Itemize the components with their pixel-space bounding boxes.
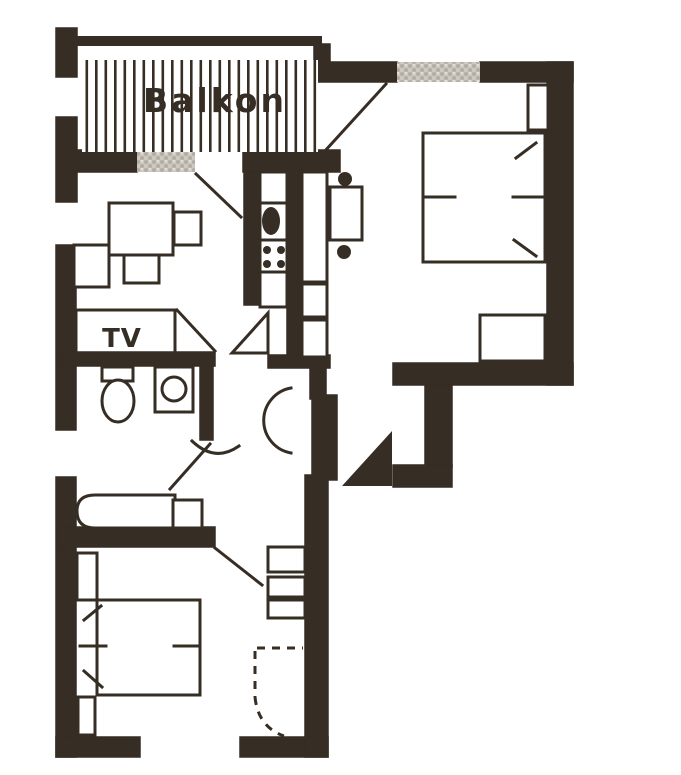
cooktop-burner	[277, 260, 285, 268]
living-area: TV	[74, 203, 215, 354]
armchair	[174, 212, 201, 245]
cabinet	[302, 320, 327, 357]
wall-segment	[425, 385, 452, 467]
wall-segment	[243, 150, 340, 172]
bathroom	[102, 367, 239, 489]
toilet-bowl	[102, 380, 134, 422]
door-swing-arc	[264, 388, 291, 453]
wall-segment	[56, 28, 77, 77]
bedroom-lower	[77, 547, 305, 736]
wall-segment	[200, 366, 213, 440]
balcony-door-leaf	[196, 174, 241, 217]
cooktop-burner	[263, 246, 271, 254]
wall-segment	[393, 363, 573, 385]
seating-bench	[74, 245, 109, 287]
wall-segment	[305, 475, 328, 757]
armchair	[124, 255, 159, 283]
wall-segment	[310, 366, 326, 399]
entry-door-leaf-filled	[342, 431, 392, 486]
dining-table	[330, 187, 362, 240]
kitchen-door-leaf	[232, 313, 268, 353]
kitchen-sink	[262, 207, 280, 235]
wall-segment	[72, 150, 137, 172]
chair	[338, 172, 352, 186]
french-window	[137, 150, 195, 172]
tall-cabinet	[302, 172, 327, 282]
wall-segment	[244, 172, 260, 305]
wall-segment	[317, 62, 397, 82]
wall-segment	[56, 477, 76, 757]
shelf-unit-cell	[268, 577, 305, 597]
shelf-unit-cell	[268, 547, 305, 572]
balcony-label: Balkon	[143, 81, 287, 120]
door-leaf	[177, 310, 215, 351]
balcony-railing	[74, 36, 322, 46]
dresser	[480, 315, 545, 361]
door-leaf	[324, 84, 386, 152]
cooktop-burner	[277, 246, 285, 254]
window	[397, 62, 480, 82]
dashed-door-swing	[255, 648, 303, 736]
wall-segment	[393, 465, 452, 487]
cooktop-burner	[263, 260, 271, 268]
side-table	[173, 500, 202, 528]
coffee-table	[109, 203, 173, 255]
wall-segment	[60, 352, 215, 366]
door-leaf	[215, 548, 262, 585]
cabinet	[302, 284, 327, 317]
chair	[337, 245, 351, 259]
nightstand	[528, 85, 548, 130]
tv-label: TV	[102, 324, 142, 354]
wall-segment	[56, 737, 140, 757]
wall-segment	[287, 170, 302, 357]
nightstand	[78, 697, 95, 735]
floor-plan-page: Balkon TV	[0, 0, 681, 775]
door-swing-arc	[192, 441, 239, 453]
wall-segment	[57, 527, 215, 547]
floor-plan: Balkon TV	[0, 0, 681, 775]
sofa	[77, 495, 175, 528]
nightstand	[77, 553, 97, 600]
wall-segment	[312, 395, 337, 480]
shelf-unit-cell	[268, 600, 305, 618]
wall-segment	[547, 62, 573, 385]
